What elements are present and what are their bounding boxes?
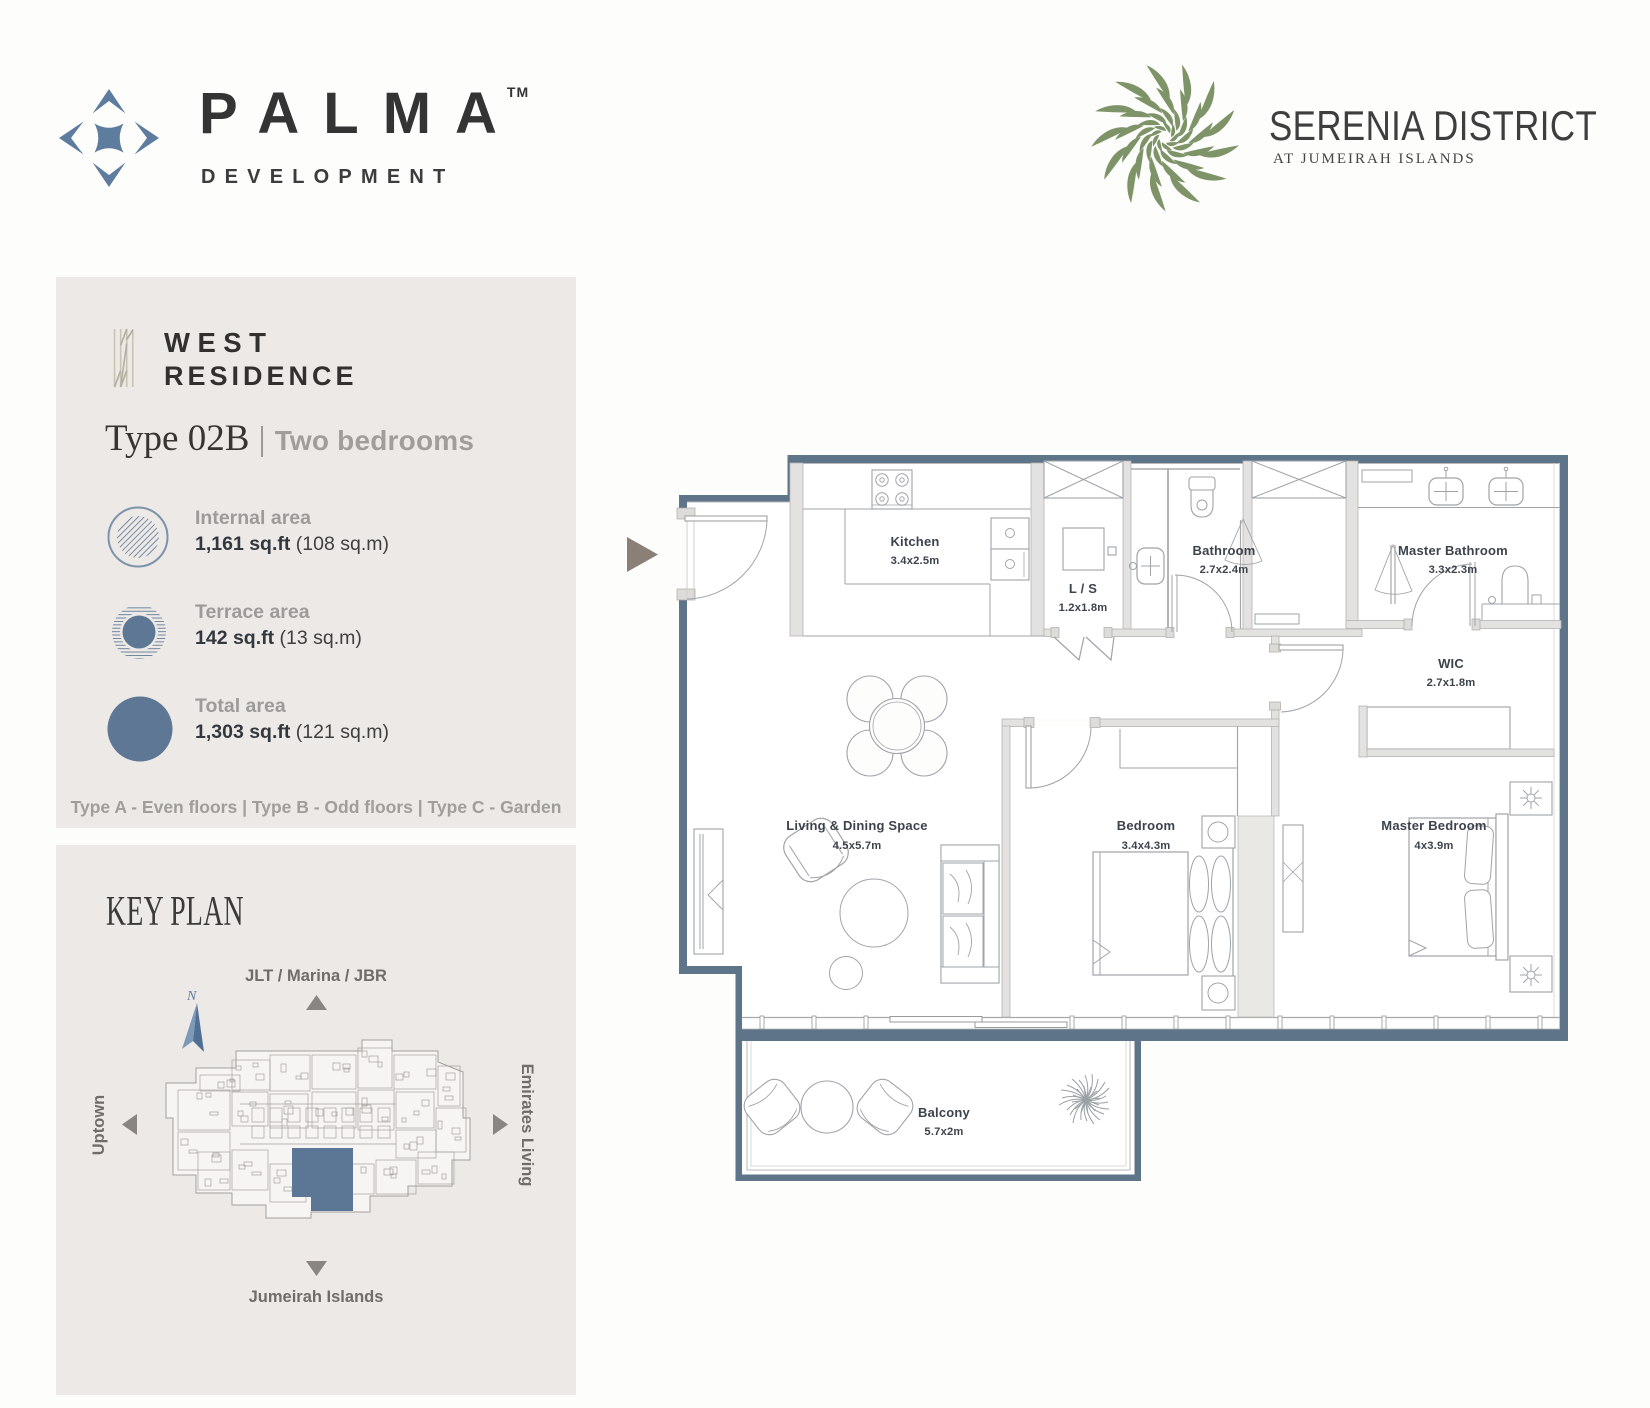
svg-text:Living & Dining Space: Living & Dining Space xyxy=(786,818,927,833)
svg-text:2.7x2.4m: 2.7x2.4m xyxy=(1200,564,1249,576)
svg-text:2.7x1.8m: 2.7x1.8m xyxy=(1427,677,1476,689)
svg-text:4x3.9m: 4x3.9m xyxy=(1414,840,1453,852)
svg-text:3.4x4.3m: 3.4x4.3m xyxy=(1122,840,1171,852)
svg-text:Kitchen: Kitchen xyxy=(890,534,939,549)
svg-text:5.7x2m: 5.7x2m xyxy=(924,1126,963,1138)
svg-text:L / S: L / S xyxy=(1069,581,1097,596)
svg-text:WIC: WIC xyxy=(1438,656,1464,671)
svg-text:3.4x2.5m: 3.4x2.5m xyxy=(891,555,940,567)
svg-text:4.5x5.7m: 4.5x5.7m xyxy=(833,840,882,852)
svg-text:Master Bathroom: Master Bathroom xyxy=(1398,543,1508,558)
svg-text:1.2x1.8m: 1.2x1.8m xyxy=(1059,602,1108,614)
svg-text:Master Bedroom: Master Bedroom xyxy=(1381,818,1486,833)
svg-text:Balcony: Balcony xyxy=(918,1105,971,1120)
svg-text:Bedroom: Bedroom xyxy=(1117,818,1175,833)
svg-text:3.3x2.3m: 3.3x2.3m xyxy=(1429,564,1478,576)
svg-text:Bathroom: Bathroom xyxy=(1193,543,1256,558)
